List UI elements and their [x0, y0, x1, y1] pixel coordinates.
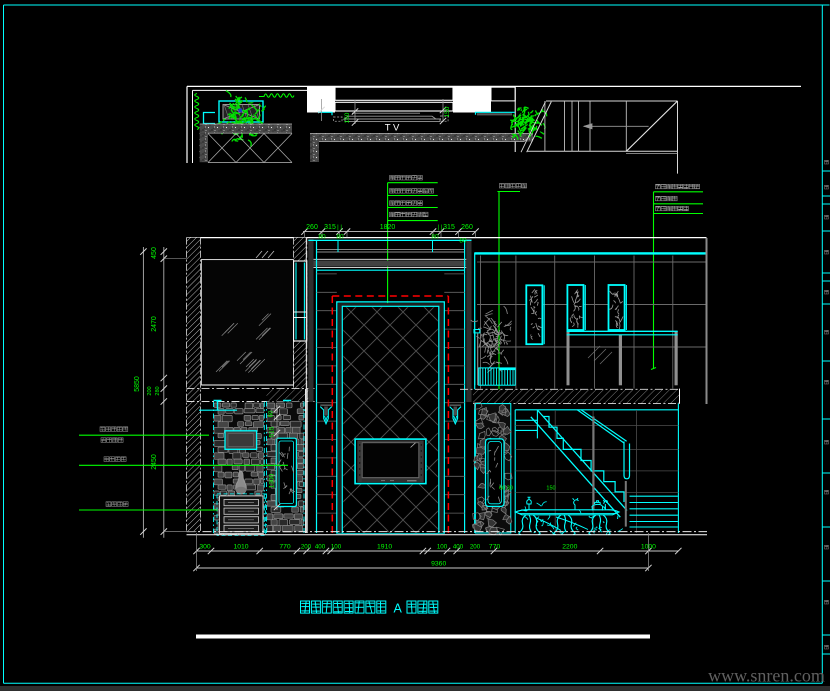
svg-text:770: 770: [279, 543, 291, 550]
svg-text:150: 150: [444, 106, 451, 117]
svg-text:www.snren.com: www.snren.com: [708, 666, 825, 686]
svg-text:200: 200: [470, 543, 481, 550]
svg-text:80: 80: [459, 238, 467, 245]
svg-text:770: 770: [489, 543, 501, 550]
svg-text:1910: 1910: [377, 543, 392, 550]
svg-text:300: 300: [199, 543, 211, 550]
svg-text:515: 515: [269, 426, 276, 437]
svg-text:2200: 2200: [562, 543, 577, 550]
svg-text:2470: 2470: [151, 316, 158, 332]
svg-text:60: 60: [269, 410, 275, 417]
svg-text:260: 260: [461, 224, 473, 231]
svg-text:400: 400: [453, 543, 464, 550]
svg-text:100: 100: [437, 543, 448, 550]
svg-text:315: 315: [443, 224, 455, 231]
svg-text:T V: T V: [385, 123, 400, 134]
svg-text:2450: 2450: [151, 454, 158, 470]
svg-text:80: 80: [318, 234, 326, 241]
svg-text:| |: | |: [337, 225, 342, 231]
svg-text:315: 315: [324, 224, 336, 231]
svg-text:1300: 1300: [269, 473, 276, 488]
svg-text:150: 150: [546, 486, 555, 492]
svg-text:100: 100: [331, 543, 342, 550]
svg-text:9360: 9360: [431, 560, 446, 567]
svg-text:200: 200: [301, 543, 312, 550]
svg-text:200: 200: [147, 386, 153, 395]
svg-text:280: 280: [155, 386, 161, 395]
svg-text:1820: 1820: [380, 224, 396, 231]
svg-text:260: 260: [306, 224, 318, 231]
svg-text:450: 450: [151, 247, 158, 259]
svg-text:150: 150: [344, 112, 351, 123]
svg-text:400: 400: [315, 543, 326, 550]
svg-text:1010: 1010: [233, 543, 248, 550]
svg-text:60 30: 60 30: [499, 486, 513, 492]
svg-text:5850: 5850: [134, 376, 141, 392]
svg-text:80: 80: [336, 234, 344, 241]
svg-text:A: A: [394, 601, 403, 615]
svg-text:| |: | |: [438, 225, 443, 231]
svg-text:80: 80: [431, 234, 439, 241]
